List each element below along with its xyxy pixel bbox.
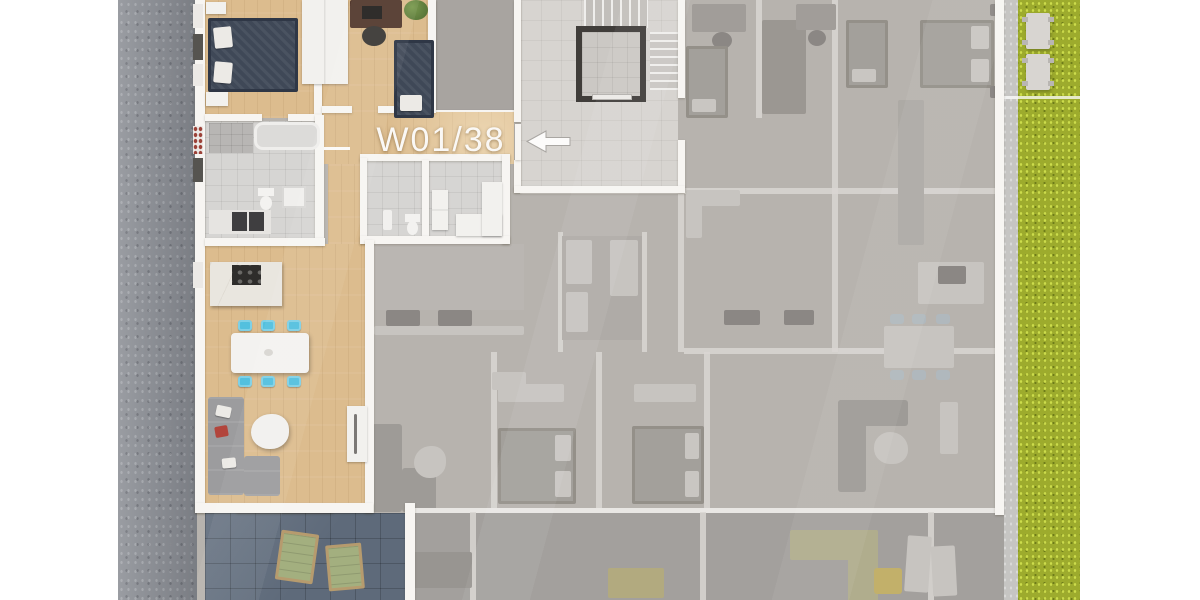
storage-cabinet (432, 190, 448, 230)
vanity-sink (438, 310, 472, 326)
desk-chair (808, 30, 826, 46)
staircase (584, 0, 648, 28)
wall-living-east (365, 240, 374, 513)
gravel-strip (118, 0, 198, 600)
wardrobe (762, 20, 806, 114)
plant (404, 0, 428, 20)
window-box (193, 4, 203, 28)
elevator (576, 26, 646, 102)
balcony-edge (415, 508, 1004, 513)
staircase (650, 32, 678, 90)
side-path (1002, 0, 1018, 600)
unit-entrance-door (515, 124, 521, 160)
ottoman (874, 568, 902, 594)
sun-lounger (931, 545, 958, 596)
vanity-sink (232, 212, 247, 231)
toilet (258, 188, 274, 196)
wall (684, 348, 1004, 354)
wardrobe (302, 0, 348, 84)
dining-chair (238, 320, 252, 331)
chair (890, 314, 904, 324)
dining-chair (238, 376, 252, 387)
dining-chair (261, 320, 275, 331)
toilet-bowl (407, 221, 418, 235)
shower (209, 123, 253, 153)
kitchen-counter (686, 190, 702, 238)
coffee-table (414, 446, 446, 478)
wall (422, 160, 429, 240)
wc-sink (383, 210, 392, 230)
sofa-pillow-red (214, 425, 229, 438)
lawn-divider-line (1002, 96, 1080, 99)
sofa (372, 424, 402, 512)
chair (936, 314, 950, 324)
corner-sofa (244, 456, 280, 496)
wall-hall-right (678, 0, 685, 98)
lounge-chair (275, 530, 320, 585)
window-box (193, 64, 203, 86)
desk (796, 4, 836, 30)
laptop (362, 6, 382, 19)
lounger (940, 402, 958, 454)
counter (374, 326, 524, 335)
wall (642, 232, 647, 352)
single-bed (394, 40, 434, 118)
desk (692, 4, 746, 32)
double-bed (498, 428, 576, 504)
cooktop (232, 265, 261, 285)
wall-outer-south (195, 503, 373, 513)
double-bed (920, 20, 994, 88)
outdoor-sofa (608, 568, 664, 598)
table-decor (264, 349, 273, 356)
nightstand (206, 2, 226, 14)
wall-outer-right (995, 0, 1004, 515)
vanity-sink (386, 310, 420, 326)
bed (846, 20, 888, 88)
wall (502, 154, 510, 244)
wardrobe (634, 384, 696, 402)
dining-chair (261, 376, 275, 387)
toilet-bowl (260, 196, 272, 210)
bathtub (254, 122, 320, 150)
sofa (838, 400, 866, 492)
window-box (193, 34, 203, 60)
double-bed (208, 18, 298, 92)
unit-label[interactable]: W01/38 (368, 122, 514, 158)
wall (322, 106, 352, 113)
wall (704, 352, 710, 512)
wall (205, 238, 325, 246)
wall (832, 0, 838, 352)
dining-chair (287, 320, 301, 331)
entrance-arrow-icon (525, 128, 573, 155)
kitchen-counter (784, 310, 814, 325)
roof-block (436, 0, 520, 114)
elevator-door (592, 94, 632, 100)
window-box (193, 262, 203, 288)
counter (482, 182, 502, 236)
chair (936, 370, 950, 380)
floor-plan-canvas: W01/38 (0, 0, 1200, 600)
nightstand (206, 92, 228, 106)
wall (205, 114, 262, 121)
wall (678, 192, 684, 352)
chair (912, 370, 926, 380)
vanity-sink (249, 212, 264, 231)
desk-chair (362, 26, 386, 46)
wall-terrace-side (405, 503, 415, 600)
washing-machine (282, 186, 306, 208)
sun-lounger (904, 535, 932, 593)
picnic-table (1026, 54, 1050, 90)
bathtub (610, 240, 638, 296)
kitchen-counter (724, 310, 760, 325)
cooktop (938, 266, 966, 284)
wardrobe (498, 384, 564, 402)
fixture (566, 240, 592, 284)
bed (686, 46, 728, 118)
wall-hall-bottom (514, 186, 685, 193)
wall-hall-right (678, 140, 685, 192)
balcony-divider (700, 512, 706, 600)
window-box (193, 158, 203, 182)
coffee-table (251, 414, 289, 449)
flower-box (193, 126, 203, 154)
dining-table (884, 326, 954, 368)
fixture (566, 292, 588, 332)
wall (360, 158, 367, 244)
cabinet (898, 100, 924, 245)
tiled-room (374, 244, 524, 310)
lounge-chair (325, 543, 365, 592)
chair (890, 370, 904, 380)
wall (596, 352, 602, 512)
sofa-pillow (222, 457, 237, 468)
double-bed (632, 426, 704, 504)
picnic-table (1026, 13, 1050, 49)
lawn (1018, 0, 1080, 600)
chair (912, 314, 926, 324)
wall (360, 236, 510, 244)
outdoor-bench (408, 552, 472, 588)
door-marker (324, 147, 350, 150)
coffee-table (874, 432, 908, 464)
wall-hall-left (514, 0, 521, 122)
dining-chair (287, 376, 301, 387)
sideboard (347, 406, 367, 462)
